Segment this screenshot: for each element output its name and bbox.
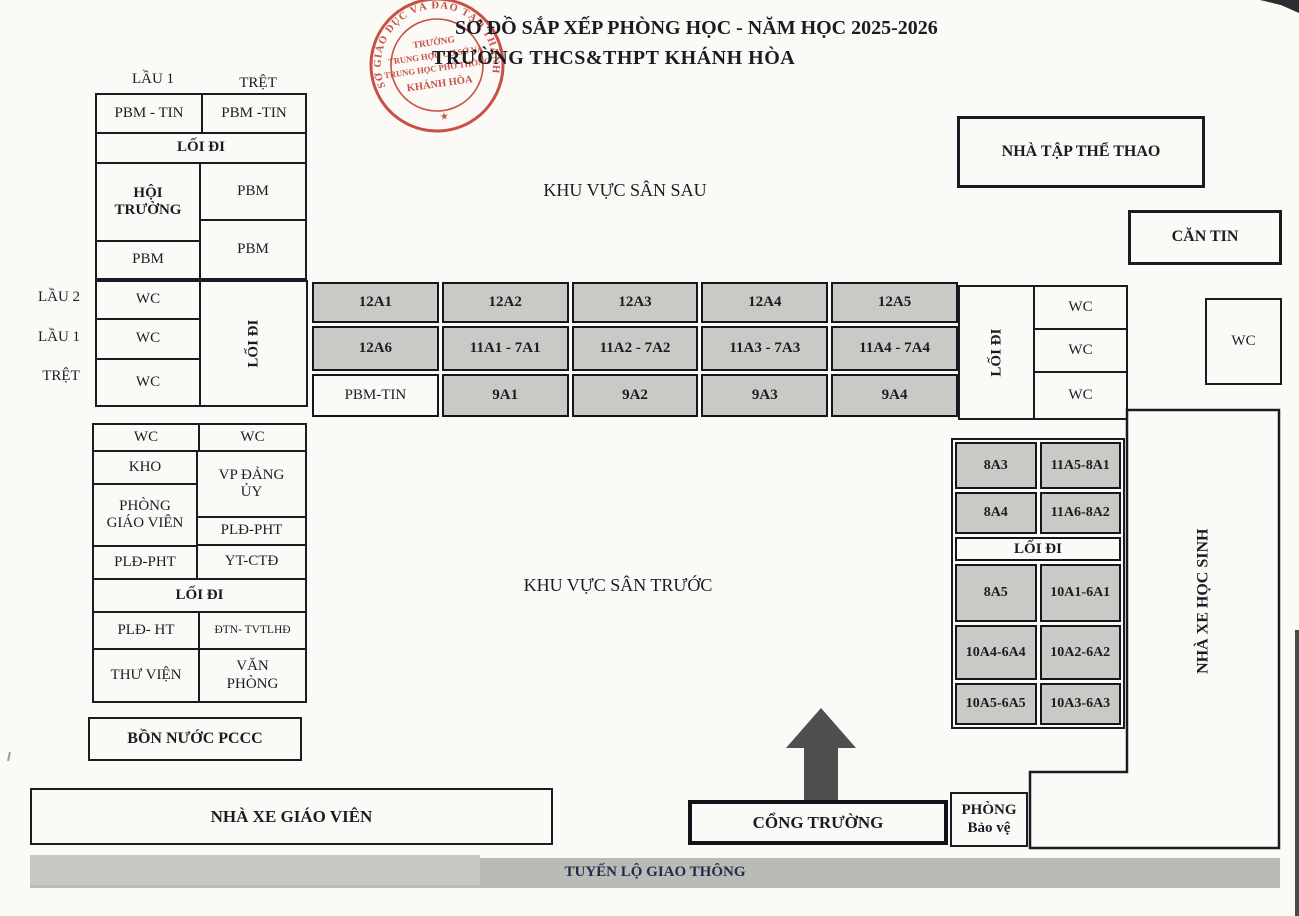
walkway-admin: LỐI ĐI	[94, 580, 305, 613]
room-pbm-tin-ground: PBM-TIN	[312, 374, 439, 417]
classroom-12A4: 12A4	[701, 282, 828, 323]
room-pbm-tin-tret: PBM -TIN	[203, 95, 305, 132]
canteen-box: CĂN TIN	[1128, 210, 1282, 265]
guard-room-line1: PHÒNG	[952, 802, 1026, 819]
wc-right-2: WC	[1035, 330, 1126, 373]
column-header-tret: TRỆT	[226, 74, 290, 94]
room-dtn-tvtlhd: ĐTN- TVTLHĐ	[200, 613, 305, 648]
room-pbm-left: PBM	[97, 242, 199, 278]
admin-block: WC WC KHO PHÒNG GIÁO VIÊN PLĐ-PHT VP ĐẢN…	[92, 423, 307, 703]
room-vp-dang-uy: VP ĐẢNG ỦY	[198, 452, 305, 518]
walkway-hall: LỐI ĐI	[97, 134, 305, 164]
water-tank-box: BỒN NƯỚC PCCC	[88, 717, 302, 761]
student-parking-outline	[1025, 400, 1287, 855]
room-pld-ht: PLĐ- HT	[94, 613, 200, 648]
school-floor-plan-document: SỞ GIÁO DỤC VÀ ĐÀO TẠO THÀNH PHỐ CẦN THƠ…	[0, 0, 1299, 916]
wc-lau2: WC	[97, 282, 199, 320]
room-thu-vien: THƯ VIỆN	[94, 650, 200, 701]
wc-admin-left: WC	[94, 425, 200, 450]
room-yt-ctd: YT-CTĐ	[198, 546, 305, 578]
room-van-phong: VĂN PHÒNG	[200, 650, 305, 701]
classroom-11A4-7A4: 11A4 - 7A4	[831, 326, 958, 371]
road-label: TUYẾN LỘ GIAO THÔNG	[30, 858, 1280, 888]
classroom-12A2: 12A2	[442, 282, 569, 323]
central-classroom-grid: 12A1 12A2 12A3 12A4 12A5 12A6 11A1 - 7A1…	[312, 282, 958, 417]
hall-block: PBM - TIN PBM -TIN LỐI ĐI HỘI TRƯỜNG PBM…	[95, 93, 307, 280]
room-pld-pht-right: PLĐ-PHT	[198, 518, 305, 546]
guard-room-box: PHÒNG Bảo vệ	[950, 792, 1028, 847]
classroom-9A4: 9A4	[831, 374, 958, 417]
stamp-star-icon: ★	[439, 111, 449, 123]
floor-label-lau1: LẦU 1	[28, 328, 90, 348]
classroom-12A3: 12A3	[572, 282, 699, 323]
room-pbm-right-1: PBM	[201, 164, 305, 221]
walkway-left-vertical: LỐI ĐI	[201, 282, 306, 405]
wc-lau1: WC	[97, 320, 199, 360]
classroom-11A1-7A1: 11A1 - 7A1	[442, 326, 569, 371]
walkway-right-vertical: LỐI ĐI	[960, 287, 1035, 418]
classroom-9A1: 9A1	[442, 374, 569, 417]
road-band: TUYẾN LỘ GIAO THÔNG	[30, 858, 1280, 888]
back-yard-label: KHU VỰC SÂN SAU	[425, 178, 825, 202]
wc-right-1: WC	[1035, 287, 1126, 330]
floor-label-lau2: LẦU 2	[28, 288, 90, 308]
front-yard-label: KHU VỰC SÂN TRƯỚC	[418, 573, 818, 597]
stamp-line-4: KHÁNH HÒA	[406, 73, 474, 94]
page-title: SƠ ĐỒ SẮP XẾP PHÒNG HỌC - NĂM HỌC 2025-2…	[455, 17, 938, 40]
guard-room-line2: Bảo vệ	[952, 820, 1026, 837]
room-pbm-right-2: PBM	[201, 221, 305, 278]
wc-admin-right: WC	[200, 425, 305, 450]
room-pld-pht-left: PLĐ-PHT	[94, 547, 196, 578]
scan-edge-shadow	[1295, 630, 1299, 916]
column-header-lau1: LẦU 1	[116, 70, 190, 90]
wc-tret: WC	[97, 360, 199, 405]
page-subtitle: TRƯỜNG THCS&THPT KHÁNH HÒA	[432, 47, 795, 70]
student-parking-label: NHÀ XE HỌC SINH	[1104, 590, 1299, 612]
room-kho: KHO	[94, 452, 196, 485]
classroom-11A2-7A2: 11A2 - 7A2	[572, 326, 699, 371]
wc-walkway-block-left: WC WC WC LỐI ĐI	[95, 280, 308, 407]
classroom-9A3: 9A3	[701, 374, 828, 417]
scan-speck	[7, 752, 11, 761]
floor-label-tret: TRỆT	[34, 367, 88, 387]
classroom-9A2: 9A2	[572, 374, 699, 417]
gate-arrow-icon	[786, 708, 856, 802]
classroom-12A1: 12A1	[312, 282, 439, 323]
wc-standalone-box: WC	[1205, 298, 1282, 385]
scan-corner-mark	[1260, 0, 1299, 13]
gate-box: CỔNG TRƯỜNG	[688, 800, 948, 845]
room-hoi-truong: HỘI TRƯỜNG	[97, 164, 199, 242]
teacher-parking-box: NHÀ XE GIÁO VIÊN	[30, 788, 553, 845]
classroom-11A3-7A3: 11A3 - 7A3	[701, 326, 828, 371]
classroom-12A5: 12A5	[831, 282, 958, 323]
classroom-12A6: 12A6	[312, 326, 439, 371]
gym-box: NHÀ TẬP THỂ THAO	[957, 116, 1205, 188]
room-phong-giao-vien: PHÒNG GIÁO VIÊN	[94, 485, 196, 547]
room-pbm-tin-lau1: PBM - TIN	[97, 95, 203, 132]
